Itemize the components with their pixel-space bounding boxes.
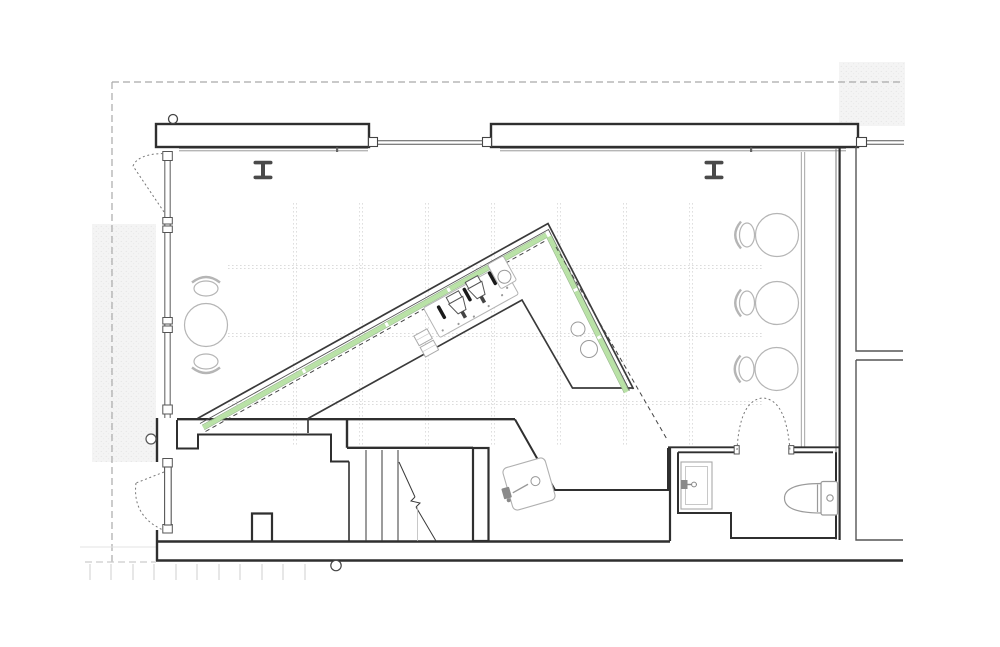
round-table: [185, 304, 228, 347]
counter-sink-circle: [581, 341, 598, 358]
chair: [740, 291, 755, 315]
floor-plan-canvas: [0, 0, 1000, 647]
chair: [739, 357, 754, 381]
chair: [740, 223, 755, 247]
round-table: [756, 282, 799, 325]
door-jamb: [163, 459, 173, 468]
mullion-tick: [750, 147, 752, 152]
stipple-zone-top-right: [839, 62, 905, 126]
top-wall-left-segment: [156, 124, 369, 147]
round-table: [755, 348, 798, 391]
door-leaf: [165, 467, 172, 525]
window-jamb: [483, 138, 492, 147]
survey-point-bottom: [331, 560, 341, 570]
floor-plan-svg: [0, 0, 1000, 647]
mullion-block: [163, 318, 173, 325]
chair: [194, 354, 218, 369]
faucet-icon: [681, 480, 688, 489]
door-jamb: [789, 446, 794, 454]
survey-point-left: [146, 434, 156, 444]
counter-sink-circle: [571, 322, 585, 336]
chair: [194, 281, 218, 296]
mullion-block: [163, 326, 173, 333]
mullion-block: [163, 218, 173, 225]
vanity-sink: [681, 462, 712, 509]
door-jamb: [163, 525, 173, 534]
window-jamb: [369, 138, 378, 147]
mullion-block: [163, 405, 173, 414]
survey-point-top: [169, 115, 178, 124]
mullion-block: [163, 152, 173, 161]
stair-right-wall: [473, 448, 489, 541]
stipple-zone-left: [92, 224, 156, 462]
window-jamb: [857, 138, 867, 147]
round-table: [756, 214, 799, 257]
mullion-block: [163, 226, 173, 233]
top-wall-right-segment: [491, 124, 858, 147]
mullion-tick: [336, 147, 338, 152]
